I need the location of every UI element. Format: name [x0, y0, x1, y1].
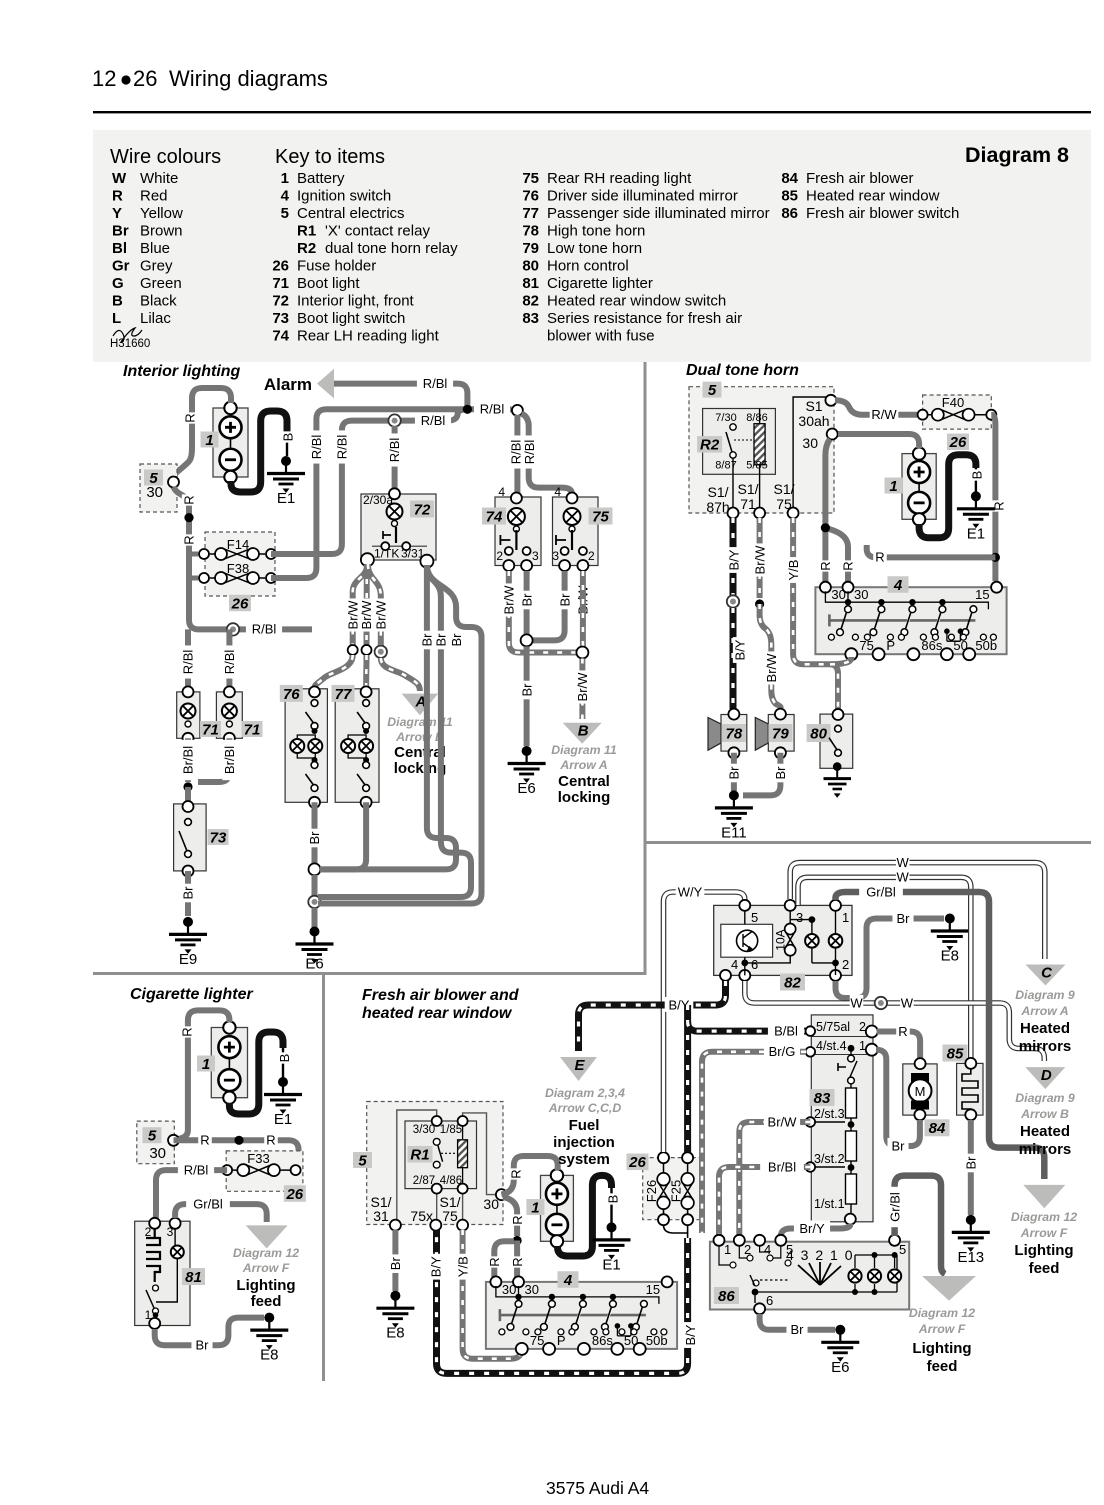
svg-text:Fresh air blower and: Fresh air blower and — [362, 987, 520, 1004]
svg-text:30: 30 — [502, 1282, 516, 1297]
svg-text:Central electrics: Central electrics — [297, 205, 405, 222]
svg-text:Br/W: Br/W — [575, 672, 590, 702]
svg-text:15: 15 — [646, 1282, 660, 1297]
svg-text:86: 86 — [718, 1288, 735, 1305]
svg-text:E1: E1 — [274, 1111, 292, 1128]
svg-text:4 3 2 1 0: 4 3 2 1 0 — [786, 1247, 854, 1263]
svg-text:R: R — [182, 535, 197, 544]
svg-text:75: 75 — [522, 170, 539, 187]
svg-text:Br: Br — [307, 831, 322, 845]
svg-text:Y/B: Y/B — [786, 560, 801, 581]
svg-text:Ignition switch: Ignition switch — [297, 188, 391, 205]
svg-text:1: 1 — [724, 1242, 731, 1257]
svg-text:Br: Br — [449, 633, 464, 647]
svg-text:1: 1 — [842, 910, 849, 925]
svg-text:B: B — [606, 1195, 621, 1204]
svg-text:75: 75 — [530, 1333, 544, 1348]
svg-text:Horn control: Horn control — [547, 258, 629, 275]
svg-text:4: 4 — [731, 957, 738, 972]
svg-text:Br/W: Br/W — [768, 1114, 798, 1129]
svg-text:R: R — [200, 1133, 209, 1148]
svg-text:R: R — [183, 413, 198, 422]
svg-text:R/Bl: R/Bl — [335, 435, 350, 460]
svg-text:Battery: Battery — [297, 170, 345, 187]
svg-text:5: 5 — [708, 382, 717, 399]
svg-text:Heated rear window switch: Heated rear window switch — [547, 293, 726, 310]
svg-text:C: C — [1041, 965, 1053, 982]
svg-text:73: 73 — [272, 310, 289, 327]
svg-text:26: 26 — [133, 66, 157, 91]
svg-text:R/Bl: R/Bl — [309, 435, 324, 460]
svg-text:Driver side illuminated mirror: Driver side illuminated mirror — [547, 188, 738, 205]
svg-text:R/Bl: R/Bl — [522, 440, 537, 465]
svg-text:Lighting: Lighting — [912, 1340, 971, 1357]
svg-text:71: 71 — [272, 275, 289, 292]
svg-text:Br: Br — [388, 1257, 403, 1271]
svg-text:Diagram 12: Diagram 12 — [233, 1246, 299, 1260]
svg-text:R: R — [510, 1215, 525, 1224]
svg-text:F33: F33 — [247, 1151, 269, 1166]
svg-text:5/75al: 5/75al — [816, 1020, 850, 1034]
svg-text:Diagram 9: Diagram 9 — [1015, 988, 1075, 1002]
svg-text:W: W — [897, 855, 910, 870]
svg-text:Diagram 12: Diagram 12 — [909, 1306, 975, 1320]
svg-text:30: 30 — [146, 484, 163, 501]
svg-text:mirrors: mirrors — [1019, 1038, 1072, 1055]
svg-text:B/Bl: B/Bl — [774, 1023, 798, 1038]
svg-text:Br: Br — [963, 1156, 978, 1170]
svg-text:75: 75 — [442, 1208, 458, 1224]
svg-text:R1: R1 — [410, 1147, 429, 1164]
svg-text:R: R — [182, 495, 197, 504]
svg-text:81: 81 — [522, 275, 539, 292]
svg-text:5: 5 — [751, 910, 758, 925]
svg-text:Br/Bl: Br/Bl — [181, 746, 196, 774]
svg-text:Arrow A: Arrow A — [559, 758, 607, 772]
svg-text:3: 3 — [552, 549, 559, 563]
svg-text:3/30: 3/30 — [413, 1124, 435, 1136]
svg-text:3/st.2: 3/st.2 — [814, 1152, 845, 1166]
svg-text:B: B — [578, 723, 589, 740]
svg-text:30: 30 — [149, 1145, 166, 1162]
svg-text:1: 1 — [281, 170, 289, 187]
svg-text:Dual tone horn: Dual tone horn — [686, 362, 799, 379]
svg-text:Red: Red — [140, 188, 168, 205]
svg-text:E8: E8 — [260, 1347, 278, 1364]
svg-text:84: 84 — [781, 170, 798, 187]
svg-text:2/st.3: 2/st.3 — [814, 1107, 845, 1121]
svg-text:Key to items: Key to items — [275, 146, 385, 168]
svg-text:R: R — [180, 1027, 195, 1036]
svg-text:Green: Green — [140, 275, 182, 292]
svg-text:E6: E6 — [517, 780, 535, 797]
svg-text:M: M — [915, 1084, 926, 1099]
svg-text:Br: Br — [519, 593, 534, 607]
svg-text:26: 26 — [231, 595, 249, 612]
svg-text:83: 83 — [814, 1090, 831, 1107]
svg-text:3: 3 — [796, 910, 803, 925]
svg-text:72: 72 — [414, 501, 431, 518]
svg-text:Heated rear window: Heated rear window — [806, 188, 940, 205]
svg-text:Arrow B: Arrow B — [1020, 1107, 1069, 1121]
svg-text:3: 3 — [167, 1225, 174, 1239]
svg-text:4: 4 — [498, 485, 505, 499]
svg-text:Br: Br — [420, 633, 435, 647]
svg-text:R/Bl: R/Bl — [423, 376, 448, 391]
svg-text:blower with fuse: blower with fuse — [547, 328, 655, 345]
svg-text:B/Y: B/Y — [683, 1324, 698, 1345]
svg-text:S1: S1 — [805, 398, 822, 414]
svg-text:Br: Br — [791, 1322, 805, 1337]
svg-text:dual tone horn relay: dual tone horn relay — [325, 240, 458, 257]
svg-text:E9: E9 — [179, 951, 197, 968]
svg-text:Diagram 9: Diagram 9 — [1015, 1091, 1075, 1105]
svg-text:R: R — [112, 188, 123, 205]
svg-text:4: 4 — [281, 188, 290, 205]
svg-text:mirrors: mirrors — [1019, 1141, 1072, 1158]
svg-text:Cigarette lighter: Cigarette lighter — [130, 986, 253, 1003]
svg-text:R: R — [487, 1257, 502, 1266]
svg-text:Diagram 12: Diagram 12 — [1011, 1210, 1077, 1224]
svg-text:R2: R2 — [297, 240, 316, 257]
svg-text:Br/Y: Br/Y — [799, 1221, 825, 1236]
svg-text:E8: E8 — [386, 1325, 404, 1342]
svg-text:Arrow B: Arrow B — [395, 730, 444, 744]
svg-text:Br/Bl: Br/Bl — [222, 746, 237, 774]
svg-text:White: White — [140, 170, 178, 187]
svg-text:R/Bl: R/Bl — [252, 622, 277, 637]
svg-text:Heated: Heated — [1020, 1020, 1070, 1037]
svg-text:85: 85 — [947, 1045, 964, 1062]
svg-text:Arrow A: Arrow A — [1020, 1004, 1068, 1018]
svg-text:'X' contact relay: 'X' contact relay — [325, 223, 430, 240]
svg-text:Br: Br — [519, 683, 534, 697]
svg-text:E13: E13 — [957, 1249, 984, 1266]
svg-text:Diagram 11: Diagram 11 — [551, 743, 617, 757]
svg-text:5: 5 — [899, 1242, 906, 1257]
svg-text:1: 1 — [531, 1199, 539, 1216]
svg-text:H31660: H31660 — [110, 338, 150, 350]
svg-text:Br/W: Br/W — [373, 600, 388, 630]
svg-text:F40: F40 — [942, 395, 964, 410]
svg-text:15: 15 — [975, 587, 989, 602]
svg-text:F25: F25 — [669, 1180, 684, 1202]
svg-text:Fuse holder: Fuse holder — [297, 258, 376, 275]
svg-text:79: 79 — [522, 240, 539, 257]
svg-text:R: R — [818, 561, 833, 570]
svg-text:Br/G: Br/G — [769, 1044, 796, 1059]
svg-text:R1: R1 — [297, 223, 316, 240]
svg-text:87h: 87h — [706, 499, 729, 515]
svg-text:82: 82 — [522, 293, 539, 310]
svg-text:E1: E1 — [277, 490, 295, 507]
svg-text:26: 26 — [628, 1154, 646, 1171]
svg-text:P: P — [886, 638, 895, 653]
svg-text:78: 78 — [522, 223, 539, 240]
svg-text:Low tone horn: Low tone horn — [547, 240, 642, 257]
svg-text:85: 85 — [781, 188, 798, 205]
svg-text:Lilac: Lilac — [140, 310, 171, 327]
svg-text:78: 78 — [726, 725, 743, 742]
svg-text:Br: Br — [181, 886, 196, 900]
svg-text:5: 5 — [148, 1128, 157, 1145]
svg-text:86s: 86s — [921, 638, 942, 653]
svg-text:72: 72 — [272, 293, 289, 310]
svg-text:B/Y: B/Y — [428, 1256, 443, 1277]
svg-text:Cigarette lighter: Cigarette lighter — [547, 275, 653, 292]
svg-text:W: W — [897, 870, 910, 885]
svg-text:Yellow: Yellow — [140, 205, 183, 222]
svg-text:8/86: 8/86 — [746, 412, 767, 424]
svg-text:Br: Br — [196, 1337, 210, 1352]
svg-text:Heated: Heated — [1020, 1123, 1070, 1140]
svg-text:R/Bl: R/Bl — [387, 438, 402, 463]
svg-text:77: 77 — [522, 205, 539, 222]
svg-text:S1/: S1/ — [707, 484, 728, 500]
svg-text:Lighting: Lighting — [236, 1277, 295, 1294]
svg-text:E11: E11 — [721, 824, 747, 841]
svg-text:Grey: Grey — [140, 258, 173, 275]
svg-text:30: 30 — [802, 435, 818, 451]
svg-text:W/Y: W/Y — [678, 884, 703, 899]
svg-text:R: R — [509, 1169, 524, 1178]
svg-text:Brown: Brown — [140, 223, 183, 240]
svg-text:R/Bl: R/Bl — [184, 1162, 209, 1177]
svg-text:71: 71 — [244, 721, 261, 738]
svg-text:R/W: R/W — [871, 407, 897, 422]
svg-text:75x: 75x — [410, 1208, 433, 1224]
svg-text:2: 2 — [842, 957, 849, 972]
svg-text:30: 30 — [854, 587, 868, 602]
svg-text:Gr/Bl: Gr/Bl — [193, 1196, 223, 1211]
svg-text:E6: E6 — [831, 1359, 849, 1376]
svg-text:Wiring diagrams: Wiring diagrams — [169, 66, 328, 91]
svg-text:feed: feed — [1029, 1260, 1060, 1277]
svg-text:3575 Audi A4: 3575 Audi A4 — [546, 1478, 649, 1498]
svg-text:Series resistance for fresh ai: Series resistance for fresh air — [547, 310, 742, 327]
svg-text:R: R — [266, 1133, 275, 1148]
svg-text:W: W — [850, 995, 863, 1010]
svg-text:77: 77 — [335, 686, 352, 703]
svg-text:locking: locking — [558, 789, 611, 806]
svg-text:1: 1 — [859, 1039, 866, 1053]
svg-text:7/30: 7/30 — [715, 412, 736, 424]
svg-text:80: 80 — [810, 725, 827, 742]
svg-text:E: E — [574, 1057, 585, 1074]
svg-text:Y/B: Y/B — [455, 1256, 470, 1277]
svg-text:75: 75 — [859, 638, 873, 653]
svg-text:B: B — [277, 1054, 292, 1063]
svg-text:2: 2 — [496, 549, 503, 563]
svg-text:75: 75 — [592, 508, 609, 525]
svg-text:Boot light: Boot light — [297, 275, 360, 292]
svg-text:Fuel: Fuel — [569, 1117, 600, 1134]
svg-text:50b: 50b — [646, 1333, 668, 1348]
svg-text:5: 5 — [281, 205, 289, 222]
svg-text:L: L — [112, 310, 121, 327]
svg-text:30: 30 — [831, 587, 845, 602]
svg-text:High tone horn: High tone horn — [547, 223, 645, 240]
svg-text:73: 73 — [210, 829, 227, 846]
svg-text:Arrow F: Arrow F — [918, 1322, 966, 1336]
svg-text:74: 74 — [272, 328, 289, 345]
svg-text:50b: 50b — [975, 638, 997, 653]
svg-text:E8: E8 — [941, 948, 959, 965]
svg-text:R2: R2 — [700, 437, 720, 454]
svg-text:Bl: Bl — [112, 240, 127, 257]
svg-text:Lighting: Lighting — [1014, 1242, 1073, 1259]
svg-text:3: 3 — [532, 549, 539, 563]
svg-text:5/85: 5/85 — [746, 460, 767, 472]
svg-text:Rear RH reading light: Rear RH reading light — [547, 170, 692, 187]
svg-text:B: B — [112, 293, 123, 310]
svg-text:B/Y: B/Y — [733, 639, 748, 660]
svg-text:5: 5 — [358, 1152, 367, 1169]
svg-text:feed: feed — [927, 1358, 958, 1375]
svg-text:Passenger side illuminated mir: Passenger side illuminated mirror — [547, 205, 770, 222]
svg-text:83: 83 — [522, 310, 539, 327]
svg-text:Br: Br — [727, 766, 742, 780]
svg-text:84: 84 — [929, 1120, 946, 1137]
svg-text:Boot light switch: Boot light switch — [297, 310, 405, 327]
svg-text:82: 82 — [784, 974, 801, 991]
svg-text:R: R — [510, 1257, 525, 1266]
svg-text:6: 6 — [766, 1293, 773, 1308]
svg-text:Interior lighting: Interior lighting — [123, 363, 241, 380]
svg-text:Y: Y — [112, 205, 122, 222]
svg-text:Diagram 8: Diagram 8 — [965, 143, 1069, 167]
svg-text:71: 71 — [202, 721, 219, 738]
svg-text:31: 31 — [373, 1208, 389, 1224]
svg-text:1/st.1: 1/st.1 — [814, 1197, 845, 1211]
svg-text:4/st.4: 4/st.4 — [816, 1039, 847, 1053]
svg-text:Br: Br — [773, 766, 788, 780]
svg-text:S1/: S1/ — [737, 481, 758, 497]
svg-text:Br: Br — [892, 1138, 906, 1153]
svg-text:R: R — [898, 1024, 907, 1039]
svg-text:Br/W: Br/W — [752, 545, 767, 575]
svg-text:Alarm: Alarm — [264, 375, 312, 394]
svg-text:R/Bl: R/Bl — [222, 650, 237, 675]
svg-text:Arrow C,C,D: Arrow C,C,D — [548, 1101, 622, 1115]
svg-text:30ah: 30ah — [798, 413, 829, 429]
svg-text:F26: F26 — [644, 1180, 659, 1202]
svg-text:1: 1 — [202, 1056, 210, 1073]
svg-text:74: 74 — [486, 508, 503, 525]
svg-text:6: 6 — [751, 957, 758, 972]
svg-text:Br/W: Br/W — [359, 600, 374, 630]
svg-text:D: D — [1041, 1067, 1052, 1084]
svg-text:Blue: Blue — [140, 240, 170, 257]
svg-text:1: 1 — [205, 432, 213, 449]
svg-text:W: W — [901, 995, 914, 1010]
svg-text:76: 76 — [522, 188, 539, 205]
svg-text:Gr: Gr — [112, 258, 130, 275]
svg-text:R: R — [841, 561, 856, 570]
svg-text:heated rear window: heated rear window — [362, 1005, 513, 1022]
svg-text:26: 26 — [272, 258, 289, 275]
svg-text:86: 86 — [781, 205, 798, 222]
svg-text:Br/W: Br/W — [501, 585, 516, 615]
svg-text:81: 81 — [185, 1269, 202, 1286]
svg-text:Wire colours: Wire colours — [110, 146, 221, 168]
svg-text:Br/W: Br/W — [764, 653, 779, 683]
svg-text:G: G — [112, 275, 124, 292]
svg-text:Diagram 2,3,4: Diagram 2,3,4 — [545, 1086, 625, 1100]
svg-text:76: 76 — [283, 686, 300, 703]
svg-text:Rear LH reading light: Rear LH reading light — [297, 328, 440, 345]
svg-text:79: 79 — [772, 725, 789, 742]
svg-text:B: B — [970, 471, 985, 480]
svg-text:Br: Br — [434, 633, 449, 647]
svg-text:Black: Black — [140, 293, 177, 310]
svg-text:R: R — [875, 550, 884, 565]
svg-text:2/87: 2/87 — [413, 1175, 435, 1187]
svg-text:Br/W: Br/W — [345, 600, 360, 630]
svg-text:R/Bl: R/Bl — [480, 402, 505, 417]
svg-text:71: 71 — [740, 496, 756, 512]
svg-text:10A: 10A — [773, 929, 787, 950]
svg-text:B: B — [281, 433, 296, 442]
svg-text:Interior light, front: Interior light, front — [297, 293, 415, 310]
svg-text:Central: Central — [558, 773, 610, 790]
svg-text:Gr/Bl: Gr/Bl — [866, 884, 896, 899]
svg-text:30: 30 — [525, 1282, 539, 1297]
svg-text:1: 1 — [889, 478, 897, 495]
svg-text:Fresh air blower: Fresh air blower — [806, 170, 914, 187]
svg-text:E1: E1 — [967, 525, 985, 542]
svg-text:R/Bl: R/Bl — [181, 650, 196, 675]
svg-text:86s: 86s — [592, 1333, 613, 1348]
svg-text:injection: injection — [553, 1134, 615, 1151]
svg-text:Gr/Bl: Gr/Bl — [887, 1192, 902, 1222]
svg-text:2: 2 — [588, 549, 595, 563]
svg-text:system: system — [558, 1151, 610, 1168]
svg-text:Br: Br — [897, 911, 911, 926]
svg-text:S1/: S1/ — [773, 481, 794, 497]
svg-text:Arrow F: Arrow F — [1020, 1226, 1068, 1240]
svg-text:4: 4 — [893, 577, 903, 594]
svg-text:80: 80 — [522, 258, 539, 275]
svg-text:Br: Br — [112, 223, 129, 240]
svg-text:12: 12 — [92, 66, 116, 91]
svg-text:E1: E1 — [602, 1256, 620, 1273]
svg-text:feed: feed — [251, 1293, 282, 1310]
svg-text:1/85: 1/85 — [440, 1124, 462, 1136]
svg-text:E6: E6 — [305, 956, 323, 973]
svg-text:Arrow F: Arrow F — [242, 1261, 290, 1275]
svg-text:Br: Br — [557, 593, 572, 607]
svg-text:B/Y: B/Y — [727, 549, 742, 570]
svg-text:P: P — [557, 1333, 566, 1348]
svg-text:26: 26 — [285, 1186, 303, 1203]
svg-text:Fresh air blower switch: Fresh air blower switch — [806, 205, 959, 222]
svg-text:W: W — [112, 170, 127, 187]
svg-text:4: 4 — [554, 485, 561, 499]
svg-text:Br/Bl: Br/Bl — [768, 1159, 796, 1174]
svg-text:4: 4 — [563, 1272, 573, 1289]
svg-text:26: 26 — [949, 434, 967, 451]
svg-text:R/Bl: R/Bl — [421, 413, 446, 428]
